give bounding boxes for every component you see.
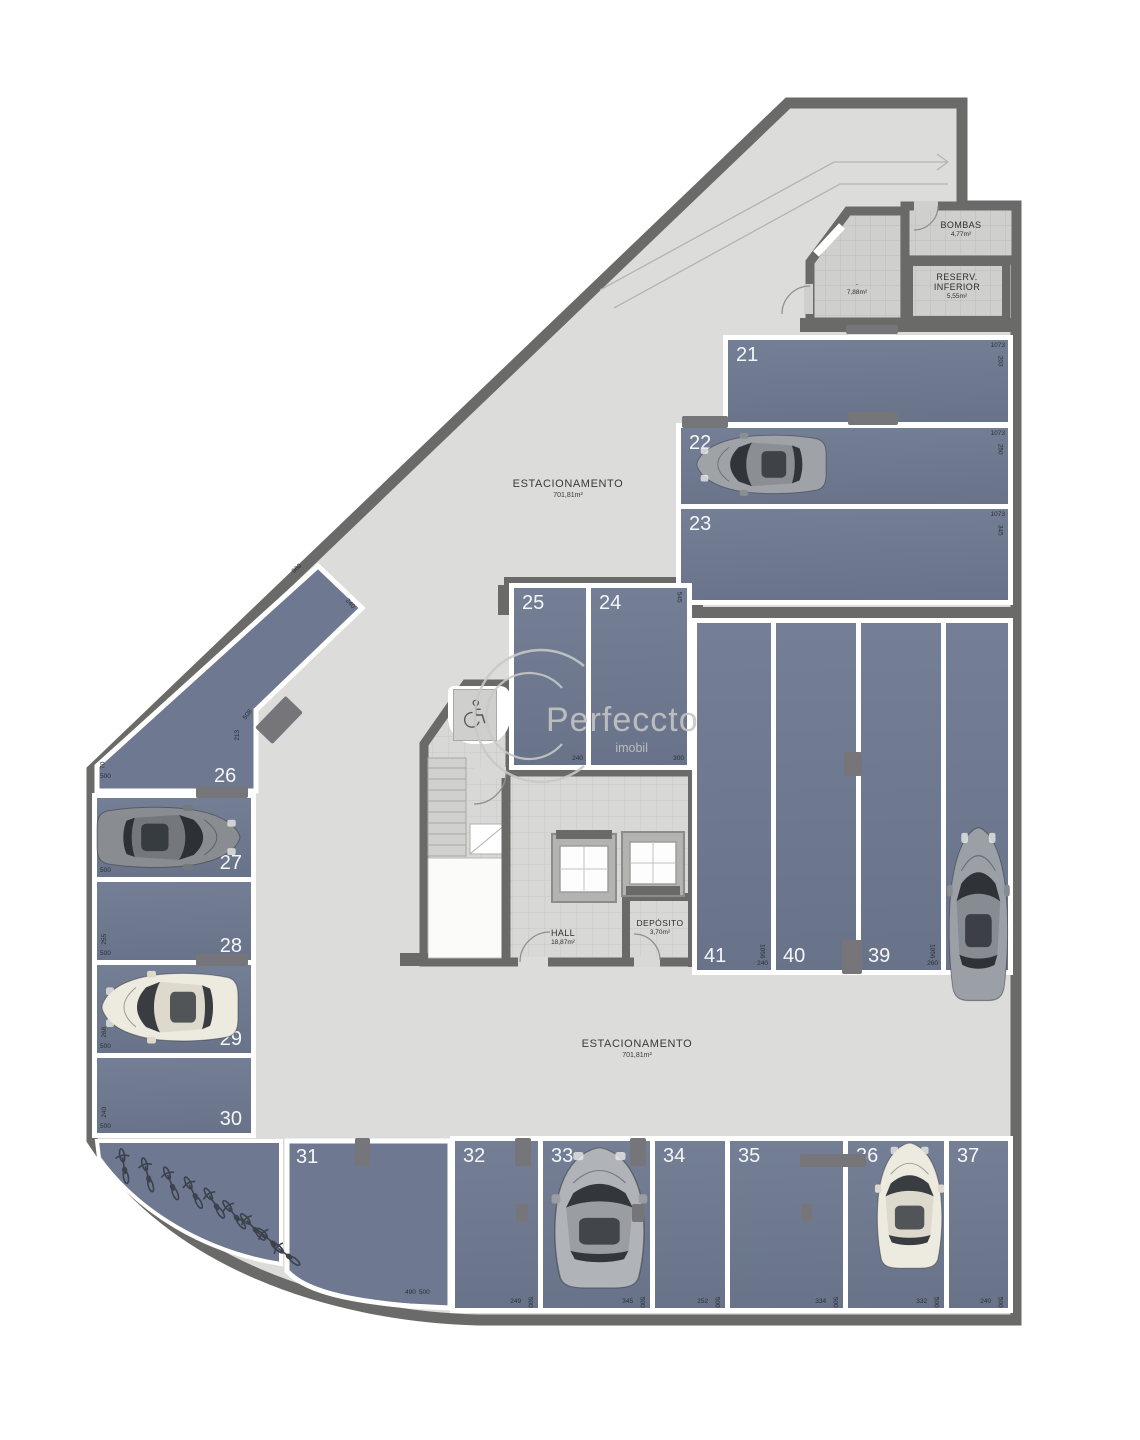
pillar	[196, 786, 248, 798]
space-number: 34	[663, 1146, 685, 1166]
accessible-spot-pad	[448, 686, 510, 744]
space-number: 37	[957, 1146, 979, 1166]
parking-space-23: 23 1073 345	[681, 509, 1008, 600]
dimension-label: 1056 240	[754, 948, 768, 967]
space-number: 31	[296, 1147, 318, 1167]
area-label-estacionamento-top: ESTACIONAMENTO 701,81m²	[468, 478, 668, 499]
dim-depth: 500	[713, 1296, 720, 1307]
space-number: 29	[220, 1029, 242, 1049]
dim-depth: 240	[102, 1107, 109, 1118]
dim-length: 1073	[991, 343, 1005, 350]
dim-length: 500	[100, 868, 111, 875]
elevator-icon	[552, 830, 616, 902]
room-label-deposito: DEPÓSITO 3,70m²	[617, 918, 703, 936]
space-number: 30	[220, 1109, 242, 1129]
dim-length: 1073	[991, 512, 1005, 519]
pillar	[255, 696, 303, 744]
dim-depth: 70	[100, 762, 107, 769]
accessible-spot-tile	[453, 689, 497, 741]
room-label-small: - 7,88m²	[807, 280, 907, 296]
room-size: 5,55m²	[897, 293, 1017, 300]
room-size: 4,77m²	[902, 231, 1020, 238]
space-number: 33	[551, 1146, 573, 1166]
space-number: 39	[868, 946, 890, 966]
area-label-estacionamento-bottom: ESTACIONAMENTO 701,81m²	[537, 1038, 737, 1059]
dimension-label: 1073 345	[991, 512, 1005, 533]
wall-top-of-right-bays	[694, 607, 1016, 618]
stair-treads	[428, 758, 466, 856]
area-name: ESTACIONAMENTO	[468, 478, 668, 490]
dimension-label: 268 500	[100, 1029, 111, 1050]
dim-depth: 255	[102, 934, 109, 945]
dim-depth: 250	[996, 443, 1003, 454]
dim-depth: 500	[996, 1296, 1003, 1307]
area-size: 701,81m²	[537, 1052, 737, 1059]
space-number: 27	[220, 853, 242, 873]
space-number: 23	[689, 514, 711, 534]
elevator-icon	[622, 832, 684, 896]
dim-depth: 500	[526, 1296, 533, 1307]
room-name: -	[807, 281, 907, 288]
parking-space-37: 37 240 500	[949, 1141, 1008, 1308]
dim-length: 300	[673, 756, 684, 763]
area-name: ESTACIONAMENTO	[537, 1038, 737, 1050]
dim-length: 332	[916, 1299, 927, 1306]
stair-void	[470, 824, 506, 854]
dim-length: 240	[572, 756, 583, 763]
parking-space-28: 28 255 500	[97, 882, 251, 960]
dimension-label: 240 500	[100, 1109, 111, 1130]
parking-space-38: 38 1056 263	[946, 623, 1008, 970]
dim-depth: 263	[994, 961, 1005, 968]
room-size: 7,88m²	[807, 289, 907, 296]
dim-length: 1056	[928, 944, 935, 958]
dim-depth: 500	[831, 1296, 838, 1307]
dim-length: 1073	[991, 431, 1005, 438]
pillar	[844, 752, 862, 776]
dimension-label: 960	[291, 563, 303, 575]
parking-space-41: 41 1056 240	[697, 623, 771, 970]
pillar	[682, 416, 728, 428]
floor-plan: 21 1073 203 22 1073 250 23 1073 345 24 5…	[0, 0, 1140, 1440]
dimension-label: 334 500	[815, 1299, 840, 1306]
dimension-label: 240 500	[100, 853, 111, 874]
pillar	[848, 412, 898, 425]
dimension-label: 1073 203	[991, 343, 1005, 364]
room-name: DEPÓSITO	[617, 918, 703, 928]
parking-space-29: 29 268 500	[97, 965, 251, 1053]
parking-space-32: 32 249 500	[455, 1141, 538, 1308]
space-number: 38	[953, 946, 975, 966]
dimension-label: 249 500	[510, 1299, 535, 1306]
dimension-label: 508	[243, 709, 255, 722]
dim-depth: 545	[675, 592, 682, 603]
dim-length: 334	[815, 1299, 826, 1306]
dim-depth: 500	[932, 1296, 939, 1307]
pillar	[800, 1154, 866, 1167]
pillar	[516, 1204, 528, 1222]
room-name: HALL	[528, 928, 598, 938]
dimension-label: 1056 263	[991, 948, 1005, 967]
dim-depth: 203	[996, 355, 1003, 366]
room-label-bombas: BOMBAS 4,77m²	[902, 220, 1020, 238]
parking-space-24: 24 545 300	[591, 588, 687, 765]
dim-depth: 260	[927, 961, 938, 968]
parking-space-30: 30 240 500	[97, 1058, 251, 1133]
wall-left-of-stair	[400, 953, 428, 966]
dim-depth: 345	[996, 524, 1003, 535]
wall-above-24-25	[504, 577, 696, 588]
dimension-label: 252 500	[697, 1299, 722, 1306]
dimension-label: 545	[673, 591, 684, 601]
dimension-label: 332 500	[916, 1299, 941, 1306]
dim-depth: 240	[102, 851, 109, 862]
space-number: 26	[214, 766, 236, 786]
room-small	[810, 211, 905, 322]
dim-depth: 500	[419, 1290, 430, 1297]
dimension-label: 213	[235, 730, 242, 741]
dimension-label: 490 500	[405, 1290, 430, 1297]
dimension-label: 1073 250	[991, 431, 1005, 452]
pillar	[842, 940, 862, 974]
dimension-label: 240	[572, 756, 583, 763]
wall-below-rooms	[800, 318, 1016, 332]
pillar	[632, 1204, 644, 1222]
window-diagonal-wall	[100, 668, 146, 712]
stair-tread-lines	[428, 768, 466, 845]
parking-space-21: 21 1073 203	[728, 340, 1008, 422]
parking-space-33: 33 345 500	[543, 1141, 650, 1308]
room-label-hall: HALL 18,87m²	[528, 928, 598, 946]
space-number: 35	[738, 1146, 760, 1166]
dim-depth: 240	[757, 961, 768, 968]
dim-length: 500	[100, 951, 111, 958]
space-number: 32	[463, 1146, 485, 1166]
room-name: INFERIOR	[897, 282, 1017, 292]
space-number: 41	[704, 946, 726, 966]
parking-space-40: 40 1056 260	[776, 623, 856, 970]
pillar	[515, 1138, 531, 1166]
room-label-reserv-inferior: RESERV. INFERIOR 5,55m²	[897, 272, 1017, 300]
space-number: 25	[522, 593, 544, 613]
dim-depth: 500	[638, 1296, 645, 1307]
space-number: 22	[689, 433, 711, 453]
dim-length: 240	[980, 1299, 991, 1306]
dim-length: 500	[100, 774, 111, 781]
room-size: 3,70m²	[617, 929, 703, 936]
bike-parking-area	[97, 1141, 281, 1264]
bicycle-icon	[114, 1148, 304, 1271]
dim-length: 490	[405, 1290, 416, 1297]
dimension-label: 240 500	[980, 1299, 1005, 1306]
parking-space-39: 39 1056 260	[861, 623, 941, 970]
stair-landing	[428, 858, 506, 958]
dimension-label: 300	[673, 756, 684, 763]
dimension-label: 240	[343, 598, 355, 610]
dimension-label: 1056 260	[924, 948, 938, 967]
pillar	[196, 954, 248, 966]
parking-space-22: 22 1073 250	[681, 428, 1008, 504]
pillar	[846, 325, 898, 334]
pillar	[630, 1138, 646, 1166]
window-small-room	[816, 226, 842, 254]
space-number: 40	[783, 946, 805, 966]
parking-space-25: 25 240	[514, 588, 586, 765]
room-size: 18,87m²	[528, 939, 598, 946]
room-name: BOMBAS	[902, 220, 1020, 230]
area-size: 701,81m²	[468, 492, 668, 499]
wall-stub	[498, 585, 511, 615]
dimension-label: 345 500	[622, 1299, 647, 1306]
space-number: 21	[736, 345, 758, 365]
dim-length: 252	[697, 1299, 708, 1306]
pillar	[801, 1204, 812, 1221]
dim-length: 500	[100, 1044, 111, 1051]
dimension-label: 70 500	[100, 762, 111, 780]
dim-length: 1056	[758, 944, 765, 958]
parking-space-26-shape	[97, 566, 362, 791]
dim-length: 500	[100, 1124, 111, 1131]
parking-space-27: 27 240 500	[97, 798, 251, 877]
space-number: 28	[220, 936, 242, 956]
dim-depth: 268	[102, 1027, 109, 1038]
dimension-label: 255 500	[100, 936, 111, 957]
pillar	[355, 1138, 370, 1166]
wheelchair-icon	[462, 697, 488, 733]
dim-length: 345	[622, 1299, 633, 1306]
space-number: 24	[599, 593, 621, 613]
dim-length: 1056	[995, 944, 1002, 958]
parking-space-34: 34 252 500	[655, 1141, 725, 1308]
dim-length: 249	[510, 1299, 521, 1306]
room-name: RESERV.	[897, 272, 1017, 282]
stair-void-brace	[470, 824, 506, 854]
